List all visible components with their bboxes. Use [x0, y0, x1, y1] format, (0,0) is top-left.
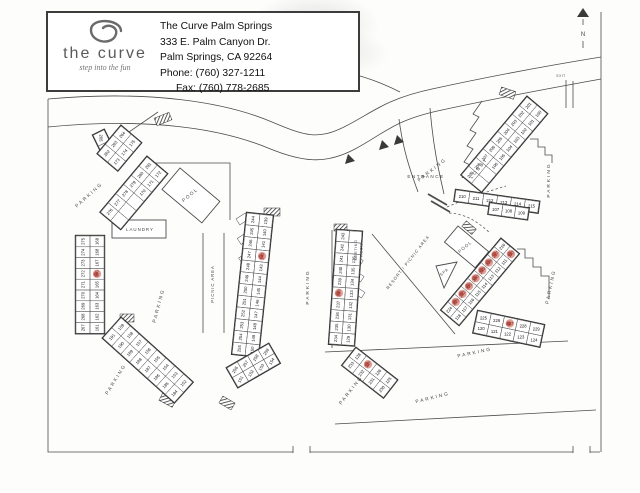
label-resort-picnic-area: RESORT / PICNIC AREA — [385, 234, 430, 290]
unit-number: 249 — [244, 274, 250, 282]
unit-number: 241 — [339, 255, 345, 263]
unit-number: 247 — [246, 250, 252, 258]
unit-number: 168 — [95, 248, 100, 256]
logo-tagline: step into the fun — [52, 63, 158, 72]
unit-number: 234 — [333, 334, 339, 342]
unit-number: 107 — [492, 207, 500, 212]
unit-number: 146 — [254, 299, 260, 307]
unit-number: 149 — [251, 334, 257, 342]
unit-number: 229 — [533, 327, 541, 332]
unit-number: 130 — [346, 324, 352, 332]
unit-number: 273 — [81, 259, 86, 267]
unit-number: 250 — [243, 286, 249, 294]
building-center: 2441392451402461412471422481432491442501… — [231, 212, 273, 357]
building-southwest: 1911591901581891571881561871551861541851… — [102, 317, 193, 403]
label-north: N — [581, 32, 585, 38]
unit-number: 144 — [257, 275, 263, 283]
unit-number: 165 — [95, 280, 100, 288]
unit-number: 122 — [504, 332, 512, 337]
building-west-strip: 2751692741682731672721662711652701642691… — [75, 235, 104, 334]
unit-number: 251 — [241, 297, 247, 305]
unit-number: 121 — [491, 329, 499, 334]
north-arrow-icon — [577, 8, 589, 17]
unit-number: 210 — [459, 194, 467, 199]
label-parking-1: PARKING — [74, 181, 104, 209]
unit-number: 254 — [238, 333, 244, 341]
parking-step-edge — [530, 139, 552, 163]
unit-number: 265 — [99, 135, 104, 143]
unit-number: 226 — [493, 318, 501, 323]
unit-number: 161 — [95, 324, 100, 332]
unit-number: 237 — [335, 300, 341, 308]
unit-number: 268 — [81, 313, 86, 321]
unit-number: 271 — [81, 280, 86, 288]
unit-number: 108 — [505, 209, 513, 214]
label-parking-2: PARKING — [152, 288, 167, 324]
label-parking-9: PARKING — [415, 391, 451, 405]
logo-title: the curve — [52, 46, 158, 62]
unit-number: 129 — [345, 335, 351, 343]
unit-number: 228 — [520, 324, 528, 329]
unit-number: 167 — [95, 259, 100, 267]
letterhead: the curve step into the fun The Curve Pa… — [46, 11, 360, 92]
driveway-gap — [293, 447, 310, 456]
driveway-gap — [573, 447, 590, 456]
unit-number: 145 — [256, 287, 262, 295]
unit-number: 275 — [81, 237, 86, 245]
unit-number: 272 — [81, 270, 86, 278]
unit-number: 132 — [348, 301, 354, 309]
label-meeting-room: MEETING — [354, 240, 358, 261]
phone: Phone: (760) 327-1211 — [160, 66, 265, 82]
unit-number: 236 — [335, 311, 341, 319]
building-lobby-wing: 2011002021012031022041032051042061052071… — [461, 96, 548, 193]
unit-number: 147 — [253, 310, 259, 318]
unit-number: 123 — [517, 334, 525, 339]
unit-number: 141 — [260, 240, 266, 248]
direction-arrow-icon — [379, 140, 389, 150]
entrance-drive-west — [399, 119, 418, 192]
unit-number: 143 — [258, 263, 264, 271]
direction-arrow-icon — [345, 154, 355, 164]
label-parking-8: PARKING — [338, 375, 364, 406]
logo: the curve step into the fun — [52, 15, 158, 87]
unit-number: 245 — [249, 227, 255, 235]
unit-number: 270 — [81, 291, 86, 299]
unit-number: 133 — [349, 290, 355, 298]
entrance-gate — [431, 201, 450, 212]
address-block: The Curve Palm Springs 333 E. Palm Canyo… — [160, 19, 356, 97]
unit-number: 243 — [340, 232, 346, 240]
parking-step-edge — [517, 249, 549, 299]
unit-number: 139 — [263, 217, 269, 225]
label-meeting-room: ROOM — [360, 243, 364, 257]
label-picnic-area: PICNIC AREA — [210, 265, 215, 303]
label-parking-5: PARKING — [417, 157, 448, 183]
direction-arrows — [345, 8, 589, 164]
unit-number: 109 — [518, 210, 526, 215]
unit-number: 242 — [339, 243, 345, 251]
unit-number: 267 — [81, 324, 86, 332]
label-entrance: ENTRANCE — [407, 174, 444, 179]
unit-number: 163 — [95, 302, 100, 310]
unit-number: 140 — [262, 228, 268, 236]
address-line1: 333 E. Palm Canyon Dr. — [160, 35, 356, 51]
unit-number: 124 — [530, 337, 538, 342]
unit-number: 244 — [250, 215, 256, 223]
unit-number: 239 — [337, 277, 343, 285]
label-parking-4: PARKING — [305, 269, 311, 304]
label-exit: EXIT — [556, 74, 565, 78]
unit-number: 135 — [350, 267, 356, 275]
unit-number: 246 — [248, 239, 254, 247]
curve-logo-icon — [75, 15, 135, 49]
unit-number: 248 — [245, 262, 251, 270]
fax: Fax: (760) 778-2685 — [176, 81, 269, 97]
unit-number: 240 — [338, 266, 344, 274]
red-marker — [94, 272, 99, 277]
unit-number: 211 — [473, 196, 480, 201]
unit-number: 252 — [240, 309, 246, 317]
building-southeast: 225226227228229120121122123124 — [473, 310, 545, 347]
unit-number: 255 — [236, 344, 242, 352]
entrance-gate — [428, 194, 447, 205]
unit-number: 253 — [239, 321, 245, 329]
label-parking-7: PARKING — [544, 269, 557, 305]
unit-number: 169 — [95, 237, 100, 245]
resort-name: The Curve Palm Springs — [160, 19, 356, 35]
phone-fax-line: Phone: (760) 327-1211 Fax: (760) 778-268… — [160, 66, 356, 97]
label-laundry: LAUNDRY — [126, 227, 154, 232]
unit-number: 131 — [347, 312, 353, 320]
label-parking-10: PARKING — [457, 346, 493, 359]
unit-number: 164 — [95, 291, 100, 299]
unit-number: 162 — [95, 313, 100, 321]
unit-number: 148 — [252, 322, 258, 330]
unit-number: 120 — [478, 326, 486, 331]
label-parking-6: PARKING — [546, 162, 552, 197]
unit-number: 225 — [480, 315, 488, 320]
building-west-b: 281172280171279170278277276 — [100, 156, 168, 230]
address-line2: Palm Springs, CA 92264 — [160, 50, 356, 66]
label-parking-3: PARKING — [104, 363, 128, 396]
unit-number: 274 — [81, 248, 86, 256]
parking-lane-edge — [335, 410, 596, 424]
unit-number: 269 — [81, 302, 86, 310]
scanned-site-map-page: 2651762641752631742621732811722801712791… — [0, 0, 640, 493]
unit-number: 235 — [334, 323, 340, 331]
unit-number: 134 — [349, 278, 355, 286]
entrance-drive-east — [430, 108, 444, 194]
